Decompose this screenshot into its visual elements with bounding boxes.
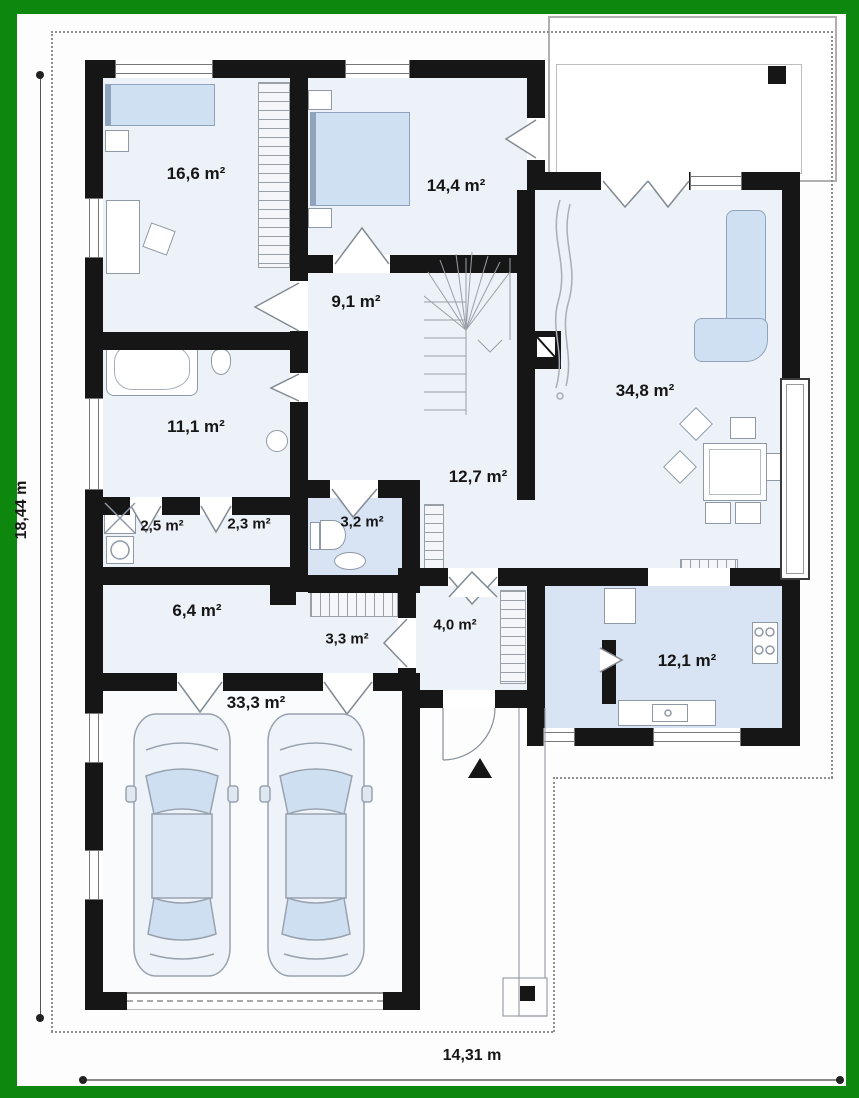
window	[85, 850, 103, 900]
kitchen-counter	[604, 588, 636, 624]
plot-boundary	[831, 31, 833, 778]
radiator-corridor	[424, 504, 444, 570]
bathtub-basin	[114, 344, 190, 390]
area-label-bedroom-2: 14,4 m²	[427, 176, 486, 196]
window	[85, 713, 103, 763]
storage-hatch-hallway	[310, 591, 398, 617]
area-label-kitchen: 12,1 m²	[658, 651, 717, 671]
plot-boundary	[51, 1031, 553, 1033]
wall	[402, 690, 420, 1010]
door-opening	[333, 255, 390, 273]
plot-boundary	[553, 777, 833, 779]
door-opening	[323, 673, 373, 691]
area-label-laundry: 2,5 m²	[140, 518, 183, 535]
area-label-living-room: 34,8 m²	[616, 381, 675, 401]
area-label-bathroom: 11,1 m²	[167, 417, 225, 437]
wardrobe-hatch-vestibule	[500, 590, 526, 684]
door-opening	[330, 480, 378, 498]
fireplace-opening	[537, 337, 555, 357]
wall	[85, 332, 308, 350]
terrace-column	[768, 66, 786, 84]
window	[85, 198, 103, 258]
nightstand-bedroom-1	[105, 130, 129, 152]
bed-bedroom-2	[310, 112, 410, 206]
door-opening	[290, 281, 308, 331]
nightstand-bedroom-2-a	[308, 90, 332, 110]
plot-boundary	[553, 777, 555, 1032]
terrace-floor	[556, 64, 802, 174]
kitchen-sink	[652, 704, 688, 722]
plot-boundary	[51, 31, 53, 1032]
door-opening	[527, 118, 545, 160]
area-label-hallway: 3,3 m²	[325, 631, 368, 648]
door-opening	[443, 690, 495, 708]
dining-chair	[735, 502, 761, 524]
wall	[527, 586, 545, 746]
door-opening	[200, 497, 232, 515]
wardrobe-hatch-bedroom-1	[258, 82, 290, 268]
window	[653, 728, 741, 746]
area-label-closet: 2,3 m²	[227, 516, 270, 533]
area-label-utility: 6,4 m²	[172, 601, 221, 621]
desk-bedroom-1	[106, 200, 140, 274]
washbasin-wc	[334, 552, 366, 570]
dimension-dot	[79, 1076, 87, 1084]
toilet-bathroom-bowl	[211, 349, 231, 375]
garage-door-sill	[127, 1000, 383, 1002]
window	[690, 172, 742, 190]
pantry-divider-wall	[602, 640, 616, 704]
wall	[85, 497, 308, 515]
plot-boundary	[51, 31, 833, 33]
area-label-vestibule: 4,0 m²	[433, 617, 476, 634]
wall	[402, 480, 420, 593]
door-opening	[448, 568, 498, 586]
nightstand-bedroom-2-b	[308, 208, 332, 228]
width-dimension-line	[82, 1079, 840, 1081]
window	[543, 728, 575, 746]
door-opening	[398, 618, 416, 668]
dimension-dot	[836, 1076, 844, 1084]
wall	[85, 567, 308, 585]
passage-opening	[648, 568, 730, 586]
door-opening	[290, 373, 308, 402]
wall	[782, 190, 800, 382]
door-opening	[601, 172, 689, 190]
dining-chair	[705, 502, 731, 524]
area-label-bedroom-1: 16,6 m²	[167, 164, 226, 184]
height-dimension-line	[40, 75, 41, 1018]
dining-chair	[730, 417, 756, 439]
area-label-garage: 33,3 m²	[227, 693, 286, 713]
dining-table-top	[709, 449, 761, 495]
bed-bedroom-1	[105, 84, 215, 126]
window	[115, 60, 213, 78]
area-label-hall: 9,1 m²	[331, 292, 380, 312]
washing-machine	[106, 536, 134, 564]
width-dimension-label: 14,31 m	[443, 1047, 502, 1065]
area-label-wc: 3,2 m²	[340, 514, 383, 531]
wall	[517, 190, 535, 500]
washbasin-bathroom	[266, 430, 288, 452]
garage-floor	[103, 691, 420, 992]
area-label-corridor: 12,7 m²	[449, 467, 508, 487]
dimension-dot	[36, 1014, 44, 1022]
window	[345, 60, 410, 78]
bay-window-glass	[786, 384, 804, 574]
stove	[752, 622, 778, 664]
height-dimension-label: 18,44 m	[13, 481, 31, 540]
door-opening	[130, 497, 162, 515]
door-opening	[177, 673, 223, 691]
wall	[782, 578, 800, 728]
dimension-dot	[36, 71, 44, 79]
floor-plan-frame: 16,6 m² 14,4 m² 9,1 m² 11,1 m² 2,5 m² 2,…	[0, 0, 859, 1098]
window	[85, 398, 103, 490]
toilet-wc-tank	[310, 522, 320, 550]
corridor-east-floor	[517, 500, 535, 568]
sofa-horizontal-section	[694, 318, 768, 362]
